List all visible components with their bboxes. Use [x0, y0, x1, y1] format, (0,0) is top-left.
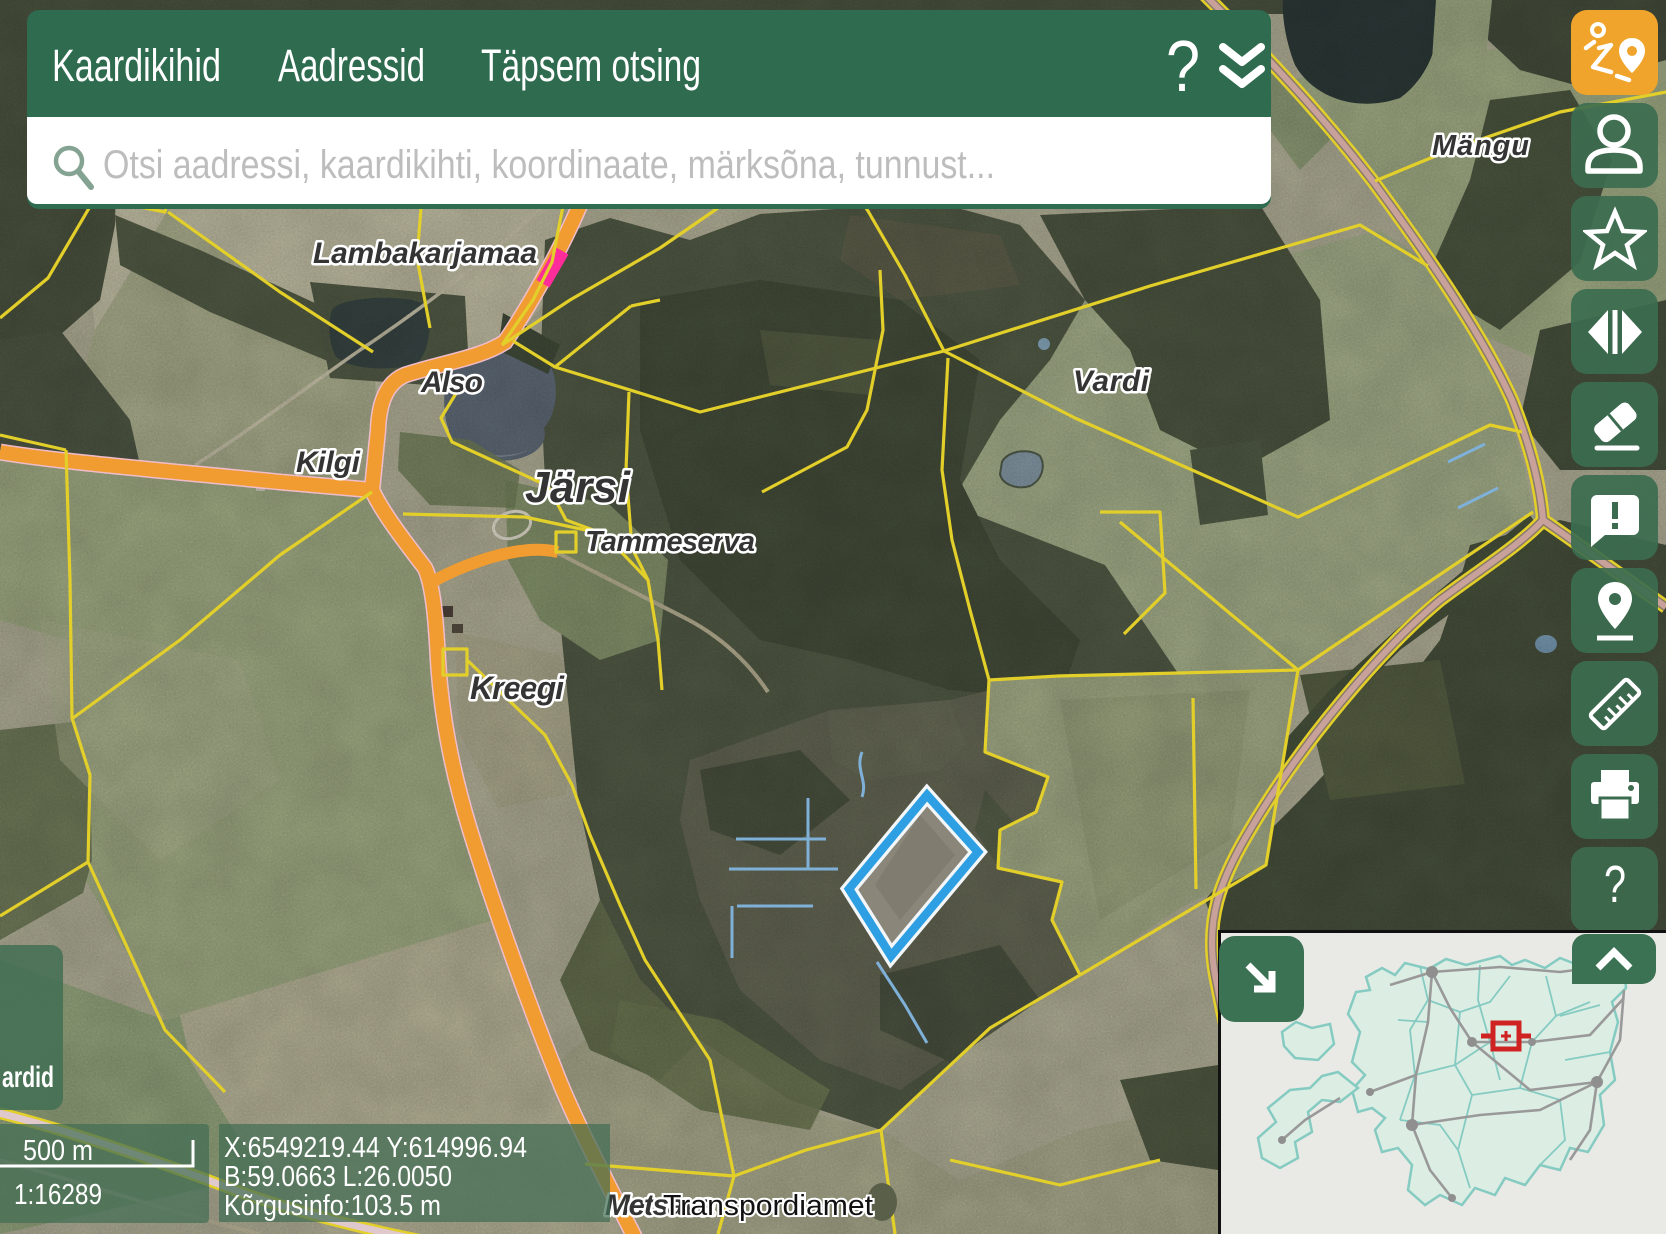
svg-text:Täpsem otsing: Täpsem otsing [481, 40, 701, 91]
svg-text:1:16289: 1:16289 [14, 1179, 102, 1211]
svg-text:500 m: 500 m [23, 1135, 93, 1167]
svg-text:Järsi: Järsi [525, 463, 631, 512]
svg-text:Lambakarjamaa: Lambakarjamaa [313, 237, 537, 270]
svg-text:Otsi aadressi, kaardikihti, ko: Otsi aadressi, kaardikihti, koordinaate,… [103, 143, 995, 187]
svg-text:Transpordiamet: Transpordiamet [663, 1190, 873, 1222]
svg-text:?: ? [1166, 27, 1200, 107]
svg-text:Mängu: Mängu [1432, 130, 1529, 162]
svg-text:Aadressid: Aadressid [278, 40, 425, 91]
svg-text:ardid: ardid [2, 1061, 54, 1094]
svg-text:Vardi: Vardi [1073, 365, 1150, 398]
svg-text:Kilgi: Kilgi [296, 446, 361, 479]
svg-text:Kreegi: Kreegi [470, 670, 565, 706]
svg-text:?: ? [1604, 856, 1626, 914]
svg-text:Kaardikihid: Kaardikihid [52, 40, 221, 91]
svg-text:Tammeserva: Tammeserva [585, 526, 755, 558]
svg-text:X:6549219.44 Y:614996.94: X:6549219.44 Y:614996.94 [224, 1132, 527, 1164]
svg-text:B:59.0663 L:26.0050: B:59.0663 L:26.0050 [224, 1161, 452, 1193]
svg-text:Kõrgusinfo:103.5 m: Kõrgusinfo:103.5 m [224, 1190, 441, 1222]
svg-text:Also: Also [420, 366, 483, 399]
